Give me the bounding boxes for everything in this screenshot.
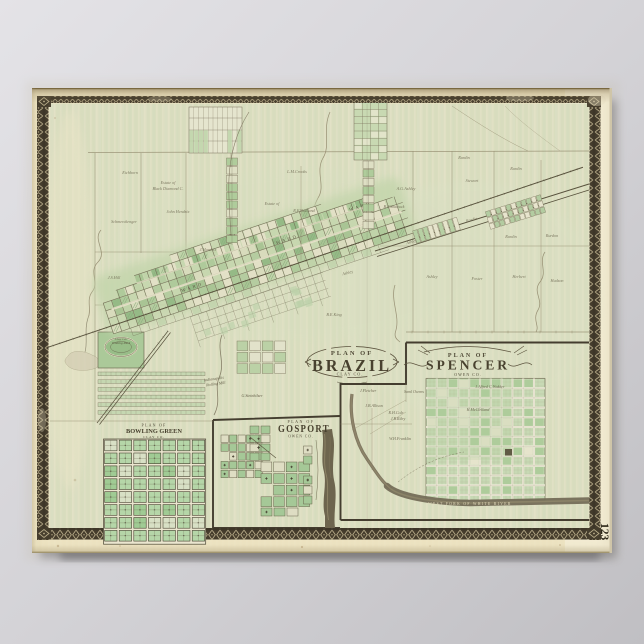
svg-text:123: 123: [598, 523, 610, 541]
